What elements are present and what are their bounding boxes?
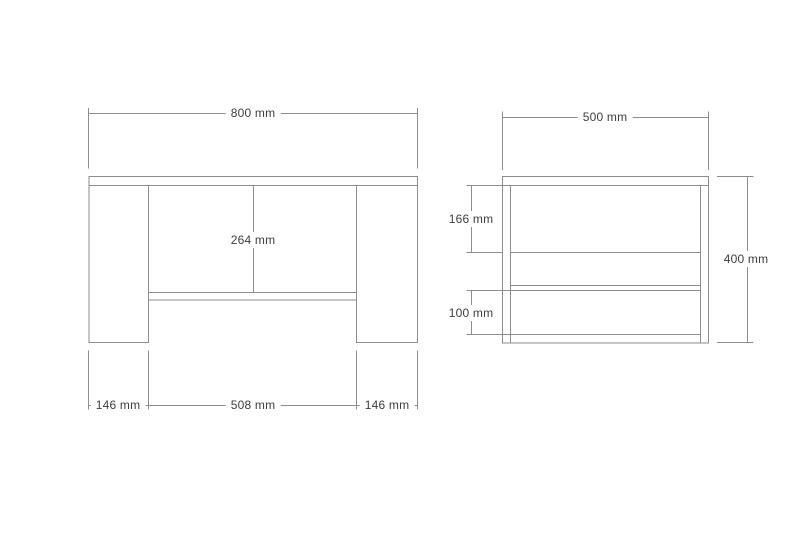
side-view bbox=[467, 112, 754, 344]
side-overall-height-label: 400 mm bbox=[719, 251, 774, 267]
front-leg-inner-height-label: 264 mm bbox=[226, 232, 281, 248]
side-panel-outline bbox=[503, 177, 709, 344]
right-leg-panel bbox=[357, 186, 418, 343]
shelf-front bbox=[149, 293, 357, 301]
furniture-dimension-drawing bbox=[0, 0, 800, 533]
front-left-leg-width-label: 146 mm bbox=[91, 397, 146, 413]
front-right-leg-width-label: 146 mm bbox=[360, 397, 415, 413]
side-upper-compartment-label: 166 mm bbox=[444, 211, 499, 227]
technical-drawing-canvas: 800 mm 264 mm 146 mm 508 mm 146 mm 500 m… bbox=[0, 0, 800, 533]
front-overall-width-label: 800 mm bbox=[226, 105, 281, 121]
left-leg-panel bbox=[89, 186, 149, 343]
tabletop-front bbox=[89, 177, 418, 186]
front-view bbox=[89, 108, 418, 410]
side-overall-depth-label: 500 mm bbox=[578, 109, 633, 125]
front-inner-span-label: 508 mm bbox=[226, 397, 281, 413]
side-lower-compartment-label: 100 mm bbox=[444, 305, 499, 321]
